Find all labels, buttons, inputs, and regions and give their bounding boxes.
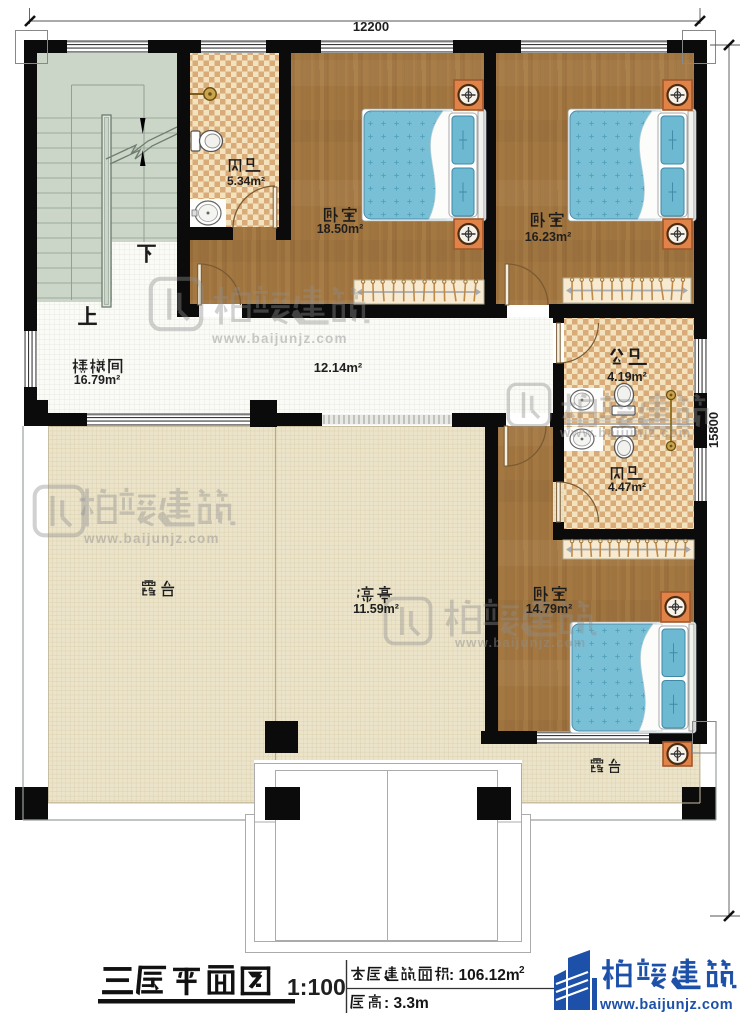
svg-text:14.79m²: 14.79m²	[526, 602, 573, 616]
svg-text:2: 2	[519, 965, 525, 976]
svg-text:12.14m²: 12.14m²	[314, 360, 363, 375]
svg-text:11.59m²: 11.59m²	[353, 602, 399, 616]
svg-text:www.baijunjz.com: www.baijunjz.com	[599, 997, 733, 1013]
svg-text:4.19m²: 4.19m²	[607, 370, 647, 384]
svg-text:18.50m²: 18.50m²	[317, 222, 364, 236]
svg-text:: 3.3m: : 3.3m	[384, 995, 429, 1012]
svg-text:www.baijunjz.com: www.baijunjz.com	[454, 635, 586, 650]
svg-text:15800: 15800	[706, 412, 721, 448]
svg-text:www.baijunjz.com: www.baijunjz.com	[83, 531, 220, 546]
svg-text:: 106.12m: : 106.12m	[449, 967, 520, 984]
svg-text:www.baijunjz.com: www.baijunjz.com	[211, 331, 348, 346]
svg-text:12200: 12200	[353, 19, 389, 34]
svg-text:5.34m²: 5.34m²	[227, 174, 265, 188]
svg-text:1:100: 1:100	[287, 974, 346, 1000]
svg-text:4.47m²: 4.47m²	[608, 480, 646, 494]
svg-text:16.79m²: 16.79m²	[74, 373, 121, 387]
svg-text:16.23m²: 16.23m²	[525, 230, 572, 244]
svg-text:www.baijunjz.com: www.baijunjz.com	[559, 425, 691, 440]
